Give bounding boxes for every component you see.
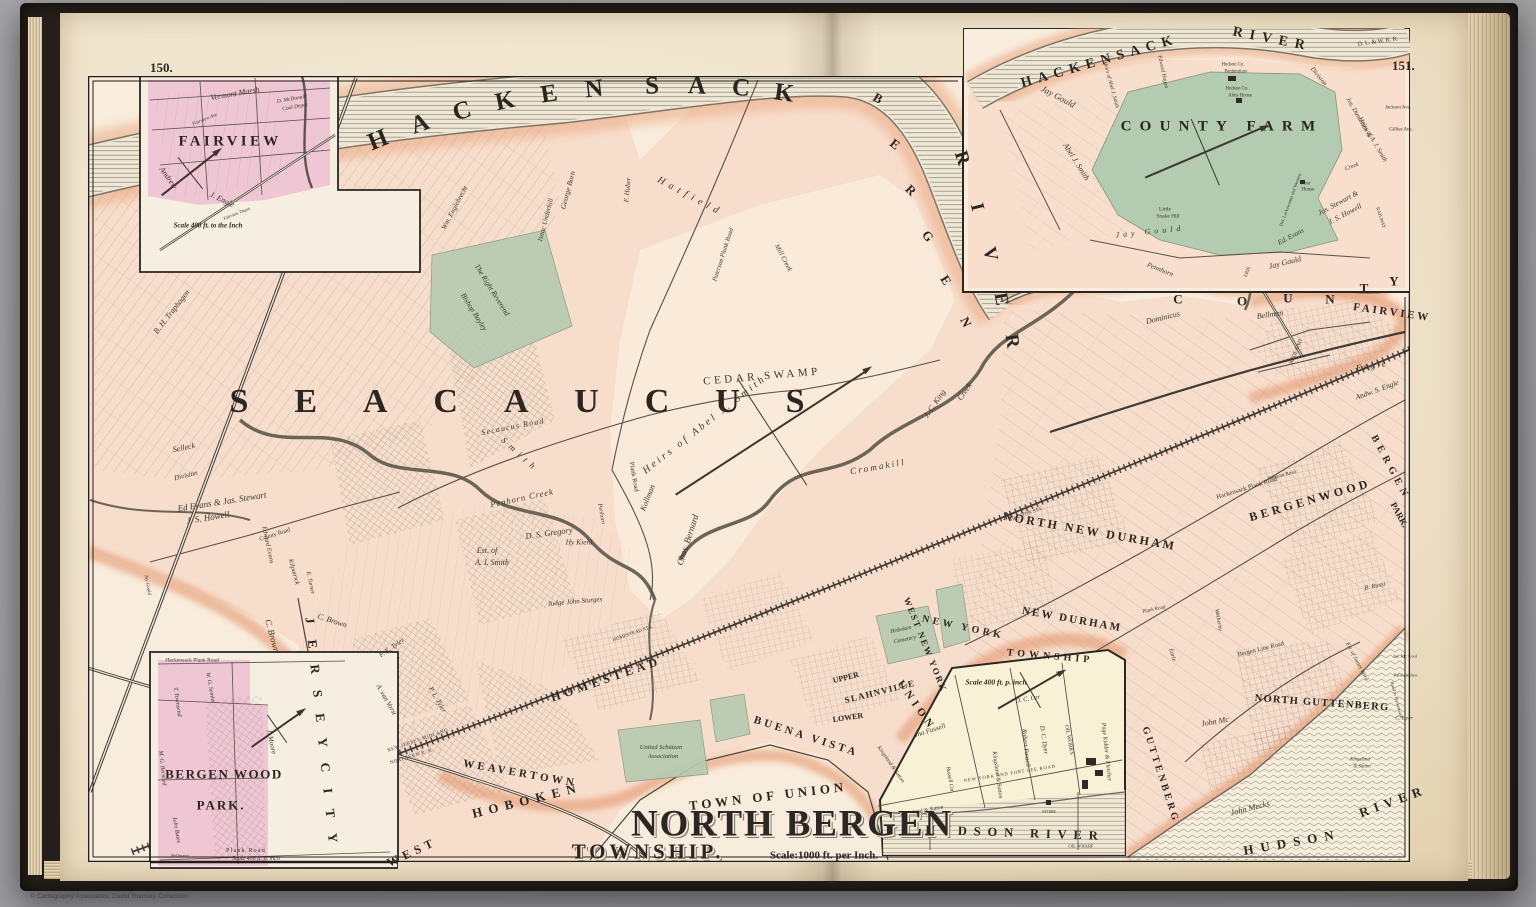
map-subtitle: TOWNSHIP. xyxy=(572,842,724,863)
bergen-wood-inset xyxy=(150,652,398,868)
map-title: NORTH BERGEN xyxy=(631,806,953,843)
collection-credit: © Cartography Associates, David Rumsey C… xyxy=(30,893,188,900)
page-number-left: 150. xyxy=(150,61,173,74)
county-farm-inset xyxy=(963,28,1410,292)
page-number-right: 151. xyxy=(1392,59,1415,72)
map-scale-note: Scale:1000 ft. per Inch. xyxy=(770,851,878,862)
desk-background: HACKENSACKRIVERBERGENHACKENSACKRIVERSEAC… xyxy=(0,0,1536,907)
map-art xyxy=(0,0,1536,907)
